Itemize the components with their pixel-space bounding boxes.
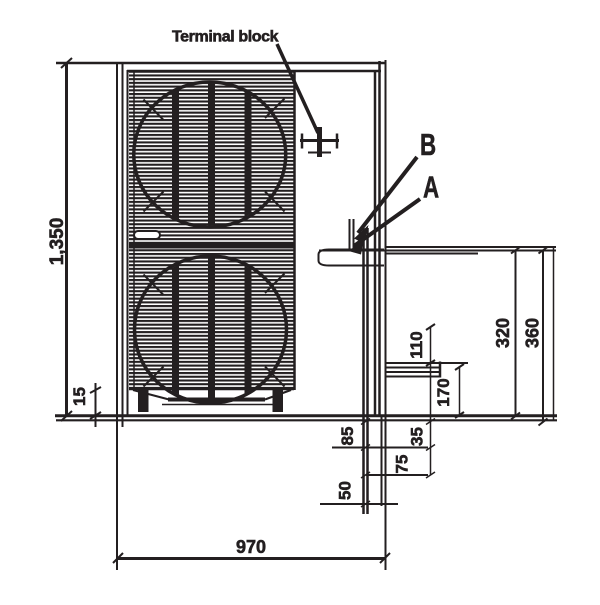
svg-text:85: 85 bbox=[338, 427, 357, 446]
svg-text:320: 320 bbox=[493, 318, 513, 348]
svg-text:75: 75 bbox=[392, 455, 411, 474]
svg-text:110: 110 bbox=[407, 331, 426, 358]
svg-text:35: 35 bbox=[407, 427, 426, 446]
svg-text:1,350: 1,350 bbox=[47, 218, 68, 266]
svg-text:970: 970 bbox=[236, 537, 266, 557]
svg-text:Terminal block: Terminal block bbox=[172, 29, 279, 46]
svg-text:50: 50 bbox=[335, 481, 354, 500]
svg-text:B: B bbox=[420, 127, 436, 161]
svg-text:170: 170 bbox=[434, 378, 453, 406]
svg-text:A: A bbox=[423, 170, 439, 204]
svg-text:15: 15 bbox=[70, 387, 89, 406]
svg-text:360: 360 bbox=[522, 318, 542, 348]
